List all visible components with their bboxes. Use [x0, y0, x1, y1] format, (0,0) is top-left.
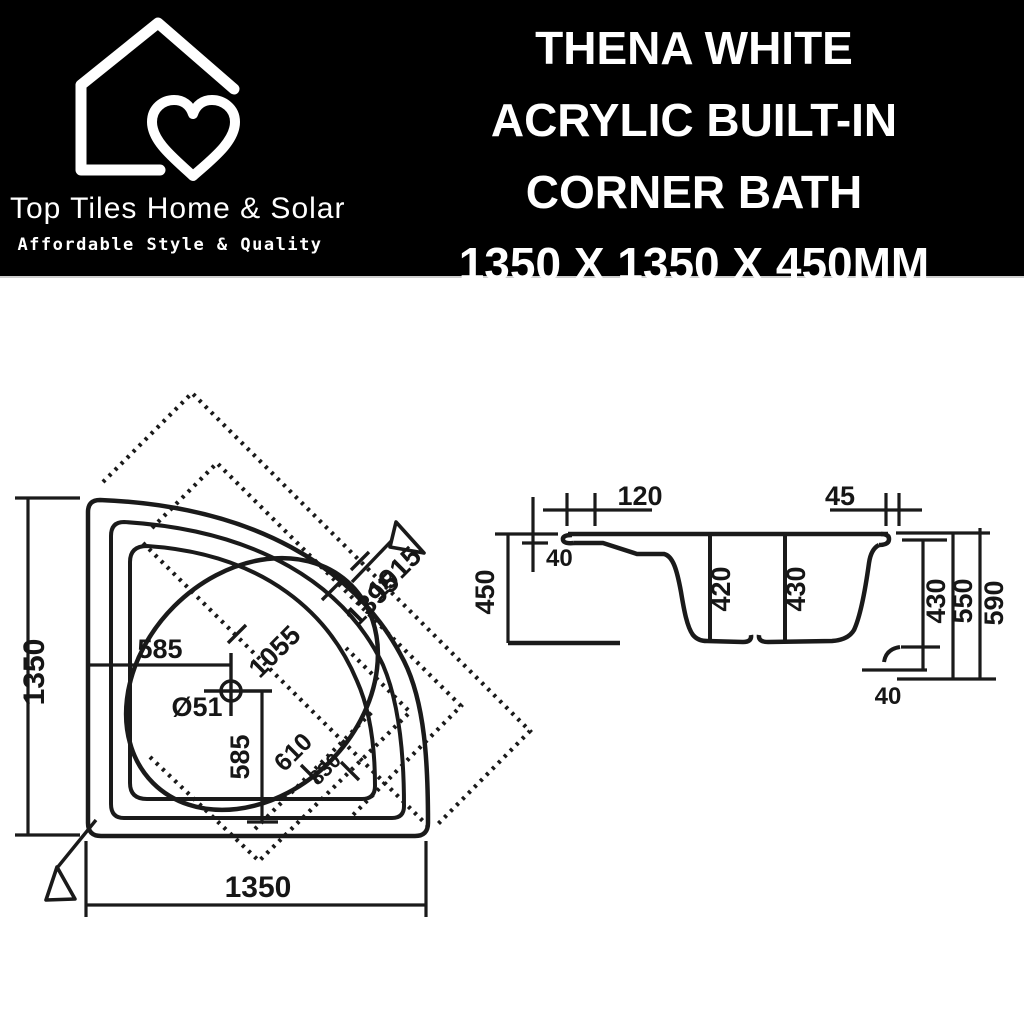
brand-name: Top Tiles Home & Solar: [10, 192, 330, 226]
dim-front-ledge: 120: [543, 481, 663, 526]
dim-right-inner-label: 430: [921, 578, 951, 623]
section-right-wall: [759, 545, 879, 642]
product-title-line-3: CORNER BATH: [392, 156, 996, 228]
drain-diameter-label: Ø51: [171, 692, 222, 722]
dim-depth-front-label: 420: [706, 566, 736, 611]
dim-back-ledge: 45: [825, 481, 922, 526]
house-heart-icon: [81, 23, 235, 176]
brand-block: Top Tiles Home & Solar Affordable Style …: [10, 192, 330, 255]
dim-base-label: 40: [875, 683, 902, 710]
product-title-line-1: THENA WHITE: [392, 12, 996, 84]
dim-back-ledge-label: 45: [825, 481, 855, 511]
dim-diag-mid-label: 1055: [243, 620, 307, 684]
dim-plan-height-label: 1350: [18, 639, 51, 706]
product-title-line-2: ACRYLIC BUILT-IN: [392, 84, 996, 156]
product-title: THENA WHITE ACRYLIC BUILT-IN CORNER BATH…: [392, 12, 996, 300]
flag-bottom-icon: [46, 867, 75, 900]
plan-view: 1350 1350 585 585 Ø51 1915 1395 1055 6: [15, 393, 530, 917]
dim-drain-y-label: 585: [225, 734, 255, 779]
dim-plan-width: 1350: [86, 841, 426, 917]
dim-basin-long-label: 830: [305, 749, 346, 790]
dim-right-stack: 430 550 590 40: [862, 528, 1009, 710]
dim-section-height: 450: [470, 534, 620, 643]
brand-tagline: Affordable Style & Quality: [10, 235, 330, 255]
dim-plan-height: 1350: [15, 498, 80, 835]
flag-pole-bottom: [57, 820, 96, 868]
dim-section-height-label: 450: [470, 569, 500, 614]
dim-front-ledge-label: 120: [617, 481, 662, 511]
dim-drain-x-label: 585: [137, 634, 182, 664]
dim-right-mid-label: 550: [948, 578, 978, 623]
dim-depth-back-label: 430: [781, 566, 811, 611]
brand-logo: [62, 8, 262, 190]
header-banner: Top Tiles Home & Solar Affordable Style …: [0, 0, 1024, 278]
heart-icon: [152, 100, 235, 176]
dim-rim-edge-label: 40: [546, 545, 573, 572]
dim-plan-width-label: 1350: [225, 871, 292, 904]
technical-drawing: 1350 1350 585 585 Ø51 1915 1395 1055 6: [0, 278, 1024, 1024]
base-foot-curve: [884, 647, 900, 662]
dim-right-overall-label: 590: [979, 580, 1009, 625]
dotted-diagonal-rim: [152, 463, 461, 816]
section-view: 420 430 450 40 120 45: [470, 481, 1009, 710]
dotted-diagonal-overall: [103, 393, 530, 825]
